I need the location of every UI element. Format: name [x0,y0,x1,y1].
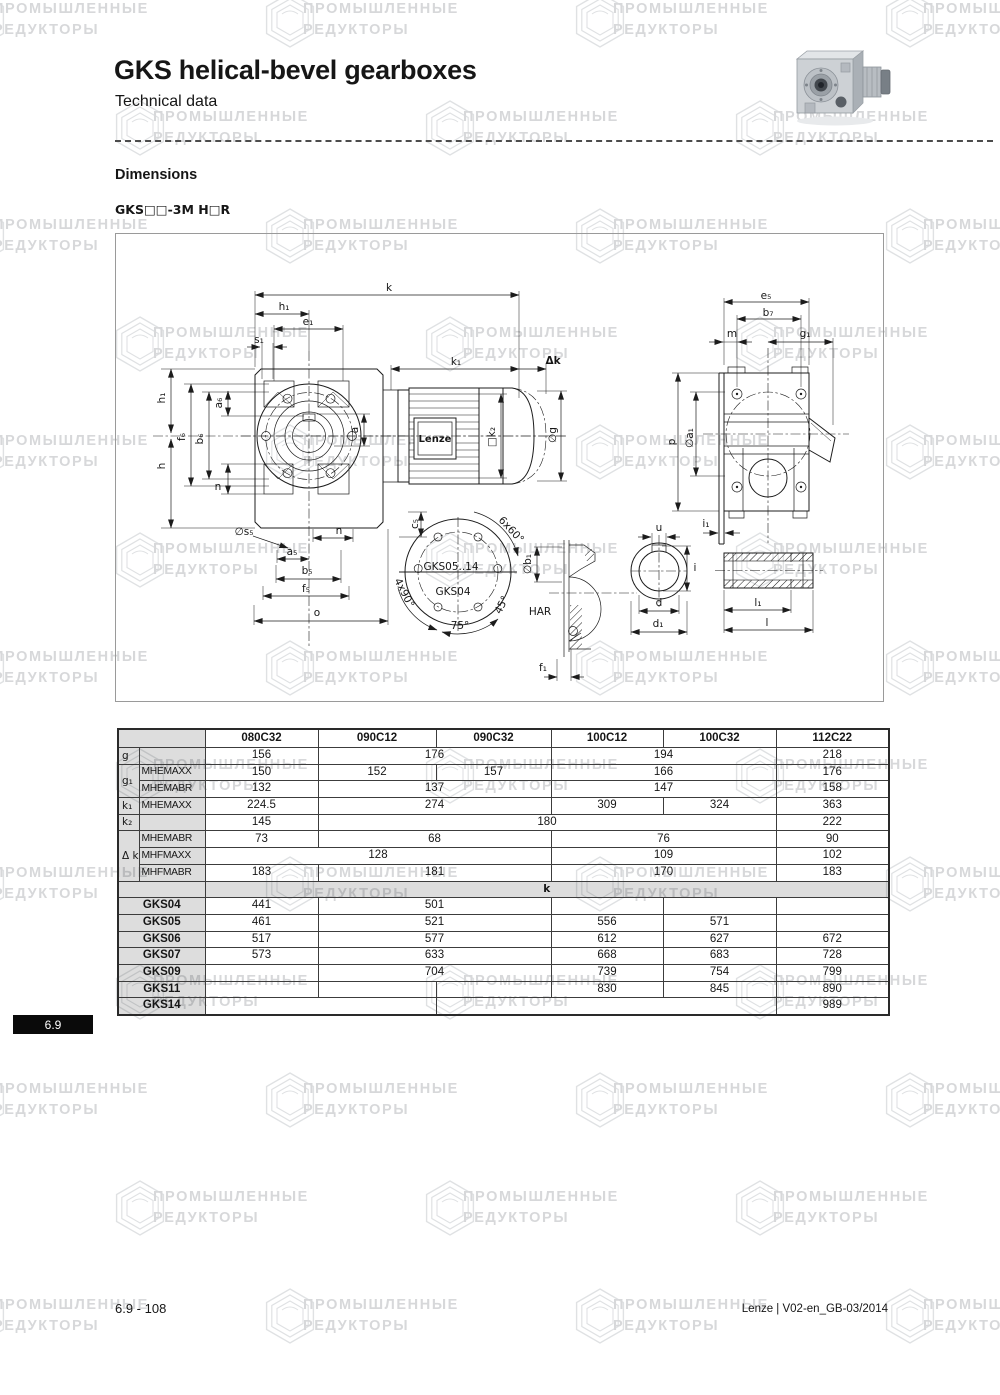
dimension-value: 704 [318,964,551,981]
dimension-value: 222 [776,814,889,831]
watermark-hexagon-logo [572,1286,628,1346]
dim-label: l₁ [754,597,761,609]
k-section-row: k [118,881,889,898]
param-condition: MHEMAXX [139,798,205,815]
dim-label: k [386,282,393,294]
watermark-hexagon-logo [0,1070,8,1130]
dim-label: f₆ [176,433,188,441]
param-condition: MHFMAXX [139,848,205,865]
table-row: GKS06517577612627672 [118,931,889,948]
dimension-value [205,981,318,998]
watermark-hexagon-logo [422,1178,478,1238]
dimension-value: 324 [663,798,776,815]
table-row: GKS07573633668683728 [118,948,889,965]
watermark-line2: РЕДУКТОРЫ [613,20,769,41]
dim-label: i [694,562,697,574]
gearbox-row-label: GKS04 [118,898,205,915]
param-condition: MHEMABR [139,831,205,848]
section-heading: Dimensions [115,167,197,183]
dim-label: c₅ [409,519,421,529]
watermark-hexagon-logo [0,638,8,698]
dimension-value: 137 [318,781,551,798]
watermark-line2: РЕДУКТОРЫ [923,452,1000,473]
table-corner-cell [118,729,205,748]
watermark-hexagon-logo [262,1070,318,1130]
watermark-line2: РЕДУКТОРЫ [303,1316,459,1337]
dim-label: ∅s₅ [235,526,254,538]
dim-label: i₁ [702,518,709,530]
dimension-value: 176 [318,748,551,765]
watermark-line2: РЕДУКТОРЫ [613,1316,769,1337]
param-condition [139,814,205,831]
dim-label: b₅ [302,565,313,577]
dimension-value: 633 [318,948,551,965]
watermark-hexagon-logo [882,1286,938,1346]
table-row: Δ kMHEMABR73687690 [118,831,889,848]
column-header: 090C12 [318,729,436,748]
watermark-line2: РЕДУКТОРЫ [923,236,1000,257]
dim-label: g₁ [800,328,811,340]
watermark-line2: РЕДУКТОРЫ [303,20,459,41]
dimension-value: 90 [776,831,889,848]
watermark-hexagon-logo [0,206,8,266]
table-row: MHEMABR132137147158 [118,781,889,798]
column-header: 100C32 [663,729,776,748]
dimension-value: 158 [776,781,889,798]
dimension-value: 668 [551,948,663,965]
watermark-line2: РЕДУКТОРЫ [923,668,1000,689]
dim-label: f₁ [539,662,547,674]
dim-label: d₁ [653,618,664,630]
dimension-value: 517 [205,931,318,948]
watermark-hexagon-logo [882,422,938,482]
gearbox-photo-graphic [785,45,895,130]
watermark-line2: РЕДУКТОРЫ [923,1100,1000,1121]
dimension-value: 461 [205,914,318,931]
variant-label: GKS□□-3M H□R [115,202,230,217]
watermark-line1: ПРОМЫШЛЕННЫЕ [463,1187,619,1208]
watermark-line1: ПРОМЫШЛЕННЫЕ [923,0,1000,20]
dim-label: HAR [529,606,551,618]
dimension-value: 147 [551,781,776,798]
watermark-line2: РЕДУКТОРЫ [0,1100,149,1121]
dim-label: h₁ [279,301,290,313]
dimension-value: 109 [551,848,776,865]
dim-label: d [656,597,663,609]
dim-label: a₆ [213,398,225,409]
dimension-value [776,914,889,931]
watermark-hexagon-logo [262,1286,318,1346]
column-header: 100C12 [551,729,663,748]
dimension-value: 73 [205,831,318,848]
watermark-line1: ПРОМЫШЛЕННЫЕ [923,647,1000,668]
watermark-line1: ПРОМЫШЛЕННЫЕ [923,863,1000,884]
table-row: MHFMAXX128109102 [118,848,889,865]
table-row: GKS04441501 [118,898,889,915]
dimension-value [205,964,318,981]
table-row: g156176194218 [118,748,889,765]
dimension-value: 612 [551,931,663,948]
dimensions-table: 080C32090C12090C32100C12100C32112C22g156… [117,728,890,1016]
watermark: ПРОМЫШЛЕННЫЕ РЕДУКТОРЫ [0,0,149,50]
diagram-svg: kh₁e₁s₁k₁Δkh₁hf₆b₆a₆na□k₂∅g∅s₅na₅b₅f₅oc₅… [116,234,883,701]
watermark-line2: РЕДУКТОРЫ [0,20,149,41]
dim-label: e₅ [761,290,772,302]
param-condition: MHEMABR [139,781,205,798]
product-photo [785,45,895,135]
param-symbol: g₁ [118,764,139,797]
watermark-hexagon-logo [112,1178,168,1238]
table-row: GKS14989 [118,998,889,1015]
param-condition [139,748,205,765]
watermark: ПРОМЫШЛЕННЫЕ РЕДУКТОРЫ [112,1178,309,1238]
watermark-line2: РЕДУКТОРЫ [613,1100,769,1121]
watermark: ПРОМЫШЛЕННЫЕ РЕДУКТОРЫ [572,1070,769,1130]
dim-label: h [156,463,168,470]
dim-label: □k₂ [486,427,498,447]
dimension-value: 157 [436,764,551,781]
dimension-value: 274 [318,798,551,815]
dim-label: n [215,481,222,493]
dim-label: f₅ [302,583,310,595]
footer-version: Lenze | V02-en_GB-03/2014 [588,1303,888,1315]
dimension-value: 728 [776,948,889,965]
k-section-header: k [205,881,889,898]
watermark-hexagon-logo [572,0,628,50]
watermark: ПРОМЫШЛЕННЫЕ РЕДУКТОРЫ [882,1070,1000,1130]
column-header: 080C32 [205,729,318,748]
dimension-value: 672 [776,931,889,948]
watermark: ПРОМЫШЛЕННЫЕ РЕДУКТОРЫ [262,0,459,50]
gearbox-row-label: GKS09 [118,964,205,981]
watermark-line1: ПРОМЫШЛЕННЫЕ [613,0,769,20]
gearbox-row-label: GKS07 [118,948,205,965]
dimension-value: 441 [205,898,318,915]
watermark-hexagon-logo [262,0,318,50]
table-row: g₁MHEMAXX150152157166176 [118,764,889,781]
watermark-line1: ПРОМЫШЛЕННЫЕ [613,1079,769,1100]
watermark-line1: ПРОМЫШЛЕННЫЕ [923,1295,1000,1316]
watermark: ПРОМЫШЛЕННЫЕ РЕДУКТОРЫ [882,422,1000,482]
watermark-line1: ПРОМЫШЛЕННЫЕ [923,1079,1000,1100]
dim-label: b₇ [763,307,774,319]
column-header: 112C22 [776,729,889,748]
watermark-line1: ПРОМЫШЛЕННЫЕ [303,1295,459,1316]
gearbox-row-label: GKS05 [118,914,205,931]
dimension-value: 176 [776,764,889,781]
dimension-value: 363 [776,798,889,815]
dimension-value: 224.5 [205,798,318,815]
watermark-line1: ПРОМЫШЛЕННЫЕ [0,0,149,20]
watermark-line1: ПРОМЫШЛЕННЫЕ [773,1187,929,1208]
gearbox-row-label: GKS06 [118,931,205,948]
dimension-value: 180 [318,814,776,831]
watermark-line2: РЕДУКТОРЫ [303,1100,459,1121]
watermark-line2: РЕДУКТОРЫ [463,1208,619,1229]
table-row: GKS11830845890 [118,981,889,998]
dimensions-diagram: kh₁e₁s₁k₁Δkh₁hf₆b₆a₆na□k₂∅g∅s₅na₅b₅f₅oc₅… [115,233,884,702]
side-view-gearbox [703,348,849,544]
dimension-value: 501 [318,898,551,915]
dimension-value: 799 [776,964,889,981]
dimension-value: 754 [663,964,776,981]
watermark-hexagon-logo [0,422,8,482]
dim-label: ∅g [547,427,559,443]
dim-label: s₁ [254,334,264,346]
dim-label: l [766,617,769,629]
dimension-value: 145 [205,814,318,831]
dimension-value: 218 [776,748,889,765]
dimension-value: 181 [318,864,551,881]
hollow-shaft-detail [715,553,823,588]
watermark: ПРОМЫШЛЕННЫЕ РЕДУКТОРЫ [882,206,1000,266]
dimension-value [776,898,889,915]
footer-page-number: 6.9 - 108 [115,1301,166,1316]
gearbox-row-label: GKS14 [118,998,205,1015]
dimension-value: 989 [776,998,889,1015]
watermark-line2: РЕДУКТОРЫ [923,884,1000,905]
param-symbol: k₂ [118,814,139,831]
column-header: 090C32 [436,729,551,748]
watermark-hexagon-logo [732,1178,788,1238]
dim-label: GKS05..14 [423,561,478,573]
gearbox-row-label: GKS11 [118,981,205,998]
watermark-line2: РЕДУКТОРЫ [923,20,1000,41]
watermark: ПРОМЫШЛЕННЫЕ РЕДУКТОРЫ [422,98,619,158]
dimension-value: 739 [551,964,663,981]
dimension-value: 68 [318,831,551,848]
page-subtitle: Technical data [115,93,217,111]
dim-label: p [666,438,678,445]
dim-label: ∅a₁ [684,428,696,448]
watermark: ПРОМЫШЛЕННЫЕ РЕДУКТОРЫ [262,1070,459,1130]
watermark: ПРОМЫШЛЕННЫЕ РЕДУКТОРЫ [422,1178,619,1238]
har-detail [549,540,637,657]
dim-label: 45° [492,594,511,616]
dim-label: u [656,522,663,534]
watermark-line2: РЕДУКТОРЫ [0,1316,149,1337]
watermark-hexagon-logo [0,1286,8,1346]
param-symbol: Δ k [118,831,139,881]
dim-label: m [727,328,737,340]
watermark-line2: РЕДУКТОРЫ [463,128,619,149]
dim-label: 75° [451,620,470,632]
dim-label: e₁ [303,316,314,328]
dimension-value: 830 [551,981,663,998]
dimension-value: 890 [776,981,889,998]
watermark-hexagon-logo [882,206,938,266]
watermark: ПРОМЫШЛЕННЫЕ РЕДУКТОРЫ [882,854,1000,914]
dim-label: h₁ [156,393,168,404]
watermark-line1: ПРОМЫШЛЕННЫЕ [463,107,619,128]
table-row: MHFMABR183181170183 [118,864,889,881]
dim-label: GKS04 [435,586,470,598]
watermark: ПРОМЫШЛЕННЫЕ РЕДУКТОРЫ [882,638,1000,698]
dimension-value: 170 [551,864,776,881]
watermark-hexagon-logo [0,0,8,50]
watermark-line1: ПРОМЫШЛЕННЫЕ [923,215,1000,236]
dimension-value: 571 [663,914,776,931]
dimension-value: 132 [205,781,318,798]
dimension-value: 573 [205,948,318,965]
dimension-value: 194 [551,748,776,765]
dimension-value: 521 [318,914,551,931]
dashed-separator [115,140,993,142]
dimension-value: 845 [663,981,776,998]
watermark-line1: ПРОМЫШЛЕННЫЕ [153,1187,309,1208]
dim-label: b₆ [194,434,206,445]
dimension-value [663,898,776,915]
watermark: ПРОМЫШЛЕННЫЕ РЕДУКТОРЫ [882,1286,1000,1346]
dimension-value [318,981,436,998]
watermark: ПРОМЫШЛЕННЫЕ РЕДУКТОРЫ [882,0,1000,50]
table-row: k₂145180222 [118,814,889,831]
dim-label: n [336,525,343,537]
param-condition: MHFMABR [139,864,205,881]
dimension-value [551,898,663,915]
dimension-value: 183 [776,864,889,881]
watermark: ПРОМЫШЛЕННЫЕ РЕДУКТОРЫ [572,1286,769,1346]
param-condition: MHEMAXX [139,764,205,781]
watermark: ПРОМЫШЛЕННЫЕ РЕДУКТОРЫ [262,1286,459,1346]
watermark-hexagon-logo [422,98,478,158]
dim-label: a₅ [287,546,298,558]
dim-label: o [314,607,320,619]
watermark-hexagon-logo [882,638,938,698]
table-row: k₁MHEMAXX224.5274309324363 [118,798,889,815]
watermark-hexagon-logo [732,98,788,158]
dimension-value: 627 [663,931,776,948]
dimension-value: 166 [551,764,776,781]
watermark-line2: РЕДУКТОРЫ [923,1316,1000,1337]
dimension-value [205,998,436,1015]
table-row: GKS05461521556571 [118,914,889,931]
watermark: ПРОМЫШЛЕННЫЕ РЕДУКТОРЫ [572,0,769,50]
dimension-value: 156 [205,748,318,765]
table-row: GKS09704739754799 [118,964,889,981]
k-section-left [118,881,205,898]
dimension-value [436,981,551,998]
dimension-value: 150 [205,764,318,781]
dimension-value: 683 [663,948,776,965]
dim-label: a [349,427,361,433]
watermark-hexagon-logo [882,0,938,50]
watermark-line2: РЕДУКТОРЫ [773,1208,929,1229]
watermark-hexagon-logo [0,854,8,914]
dimension-value: 556 [551,914,663,931]
watermark-line1: ПРОМЫШЛЕННЫЕ [923,431,1000,452]
dimension-value: 309 [551,798,663,815]
dimension-value: 128 [205,848,551,865]
dimension-value: 577 [318,931,551,948]
motor-brand-label: Lenze [419,434,452,445]
dim-label: 4x90° [392,576,417,610]
dim-label: ∅b₁ [522,554,534,574]
dim-label: Δk [545,355,561,367]
dimension-value: 183 [205,864,318,881]
watermark-line2: РЕДУКТОРЫ [153,1208,309,1229]
watermark-hexagon-logo [572,1070,628,1130]
dimension-value: 76 [551,831,776,848]
dimensions-table-wrap: 080C32090C12090C32100C12100C32112C22g156… [117,728,890,1016]
page-title: GKS helical-bevel gearboxes [114,55,477,86]
section-tab: 6.9 [13,1015,93,1034]
watermark-hexagon-logo [882,1070,938,1130]
watermark-line1: ПРОМЫШЛЕННЫЕ [303,0,459,20]
watermark-hexagon-logo [882,854,938,914]
param-symbol: g [118,748,139,765]
dim-label: k₁ [451,356,461,368]
dimension-value: 102 [776,848,889,865]
watermark-line1: ПРОМЫШЛЕННЫЕ [0,1079,149,1100]
param-symbol: k₁ [118,798,139,815]
watermark-line1: ПРОМЫШЛЕННЫЕ [303,1079,459,1100]
dimension-value: 152 [318,764,436,781]
watermark: ПРОМЫШЛЕННЫЕ РЕДУКТОРЫ [0,1070,149,1130]
watermark: ПРОМЫШЛЕННЫЕ РЕДУКТОРЫ [0,1286,149,1346]
watermark: ПРОМЫШЛЕННЫЕ РЕДУКТОРЫ [732,1178,929,1238]
watermark-line2: РЕДУКТОРЫ [153,128,309,149]
dimension-value [436,998,776,1015]
